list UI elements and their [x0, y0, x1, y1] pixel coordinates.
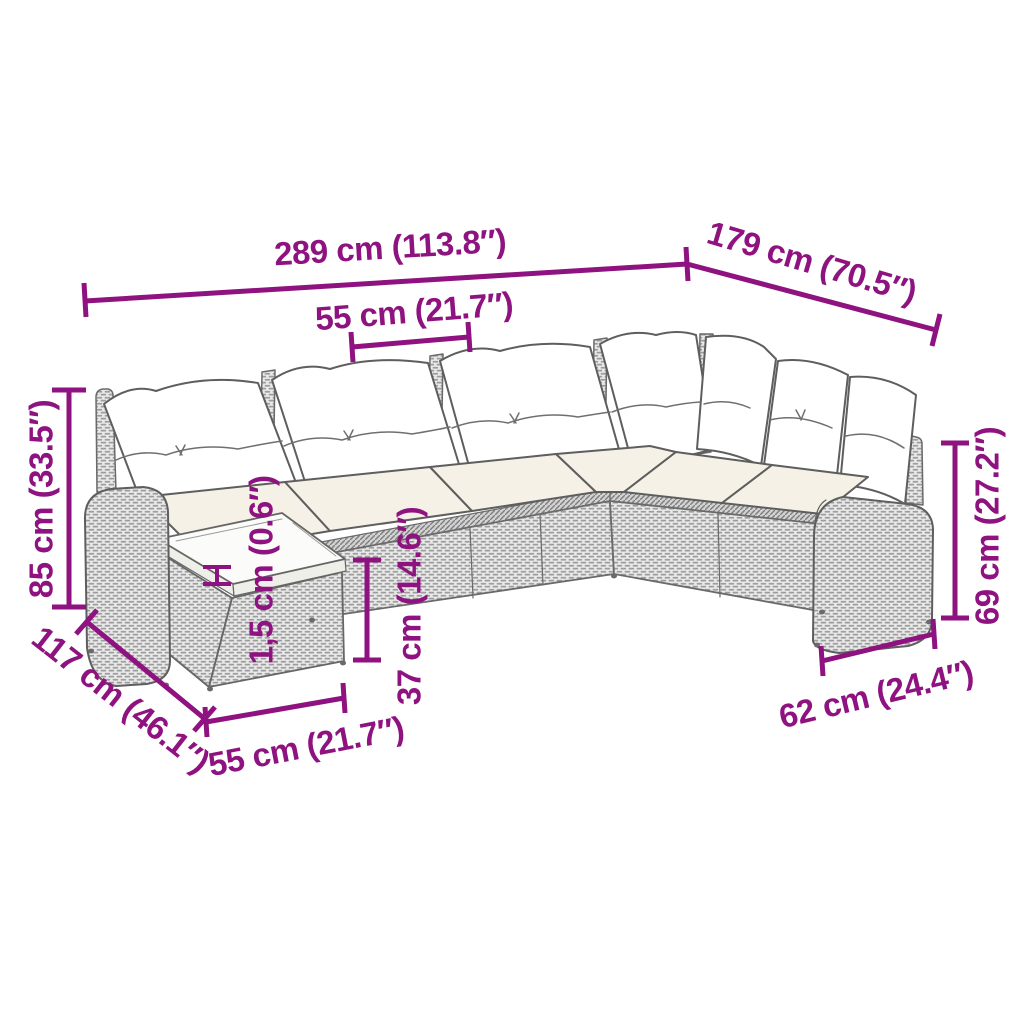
product-dimension-diagram: 289 cm (113.8″) 179 cm (70.5″) 55 cm (21…: [0, 0, 1024, 1024]
dim-tabletop-thickness-label: 1,5 cm (0.6″): [245, 475, 278, 664]
dim-armrest-height-label: 69 cm (27.2″): [971, 427, 1004, 625]
right-armrest: [813, 497, 933, 653]
sofa-illustration: [0, 0, 1024, 1024]
dim-overall-height-label: 85 cm (33.5″): [25, 400, 58, 598]
dim-table-height-label: 37 cm (14.6″): [393, 507, 426, 705]
dim-armrest-height-line: [941, 443, 969, 618]
